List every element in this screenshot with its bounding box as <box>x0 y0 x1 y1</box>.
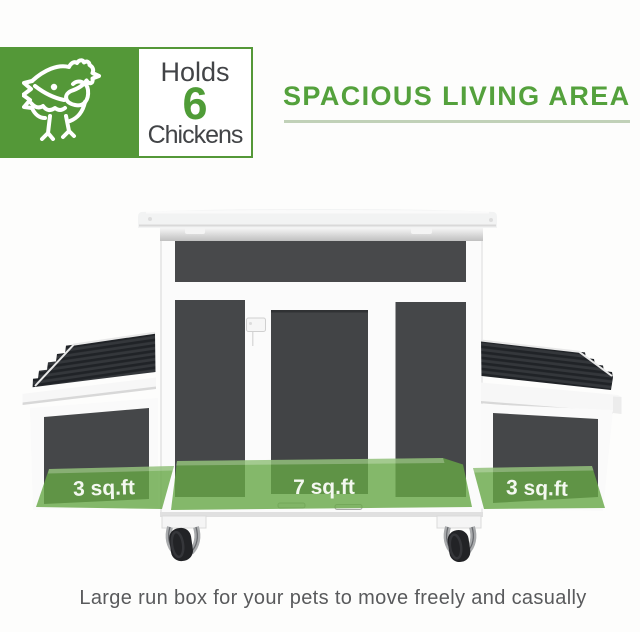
svg-text:3 sq.ft: 3 sq.ft <box>506 476 568 501</box>
svg-text:3 sq.ft: 3 sq.ft <box>73 476 135 501</box>
svg-text:7 sq.ft: 7 sq.ft <box>293 476 355 499</box>
